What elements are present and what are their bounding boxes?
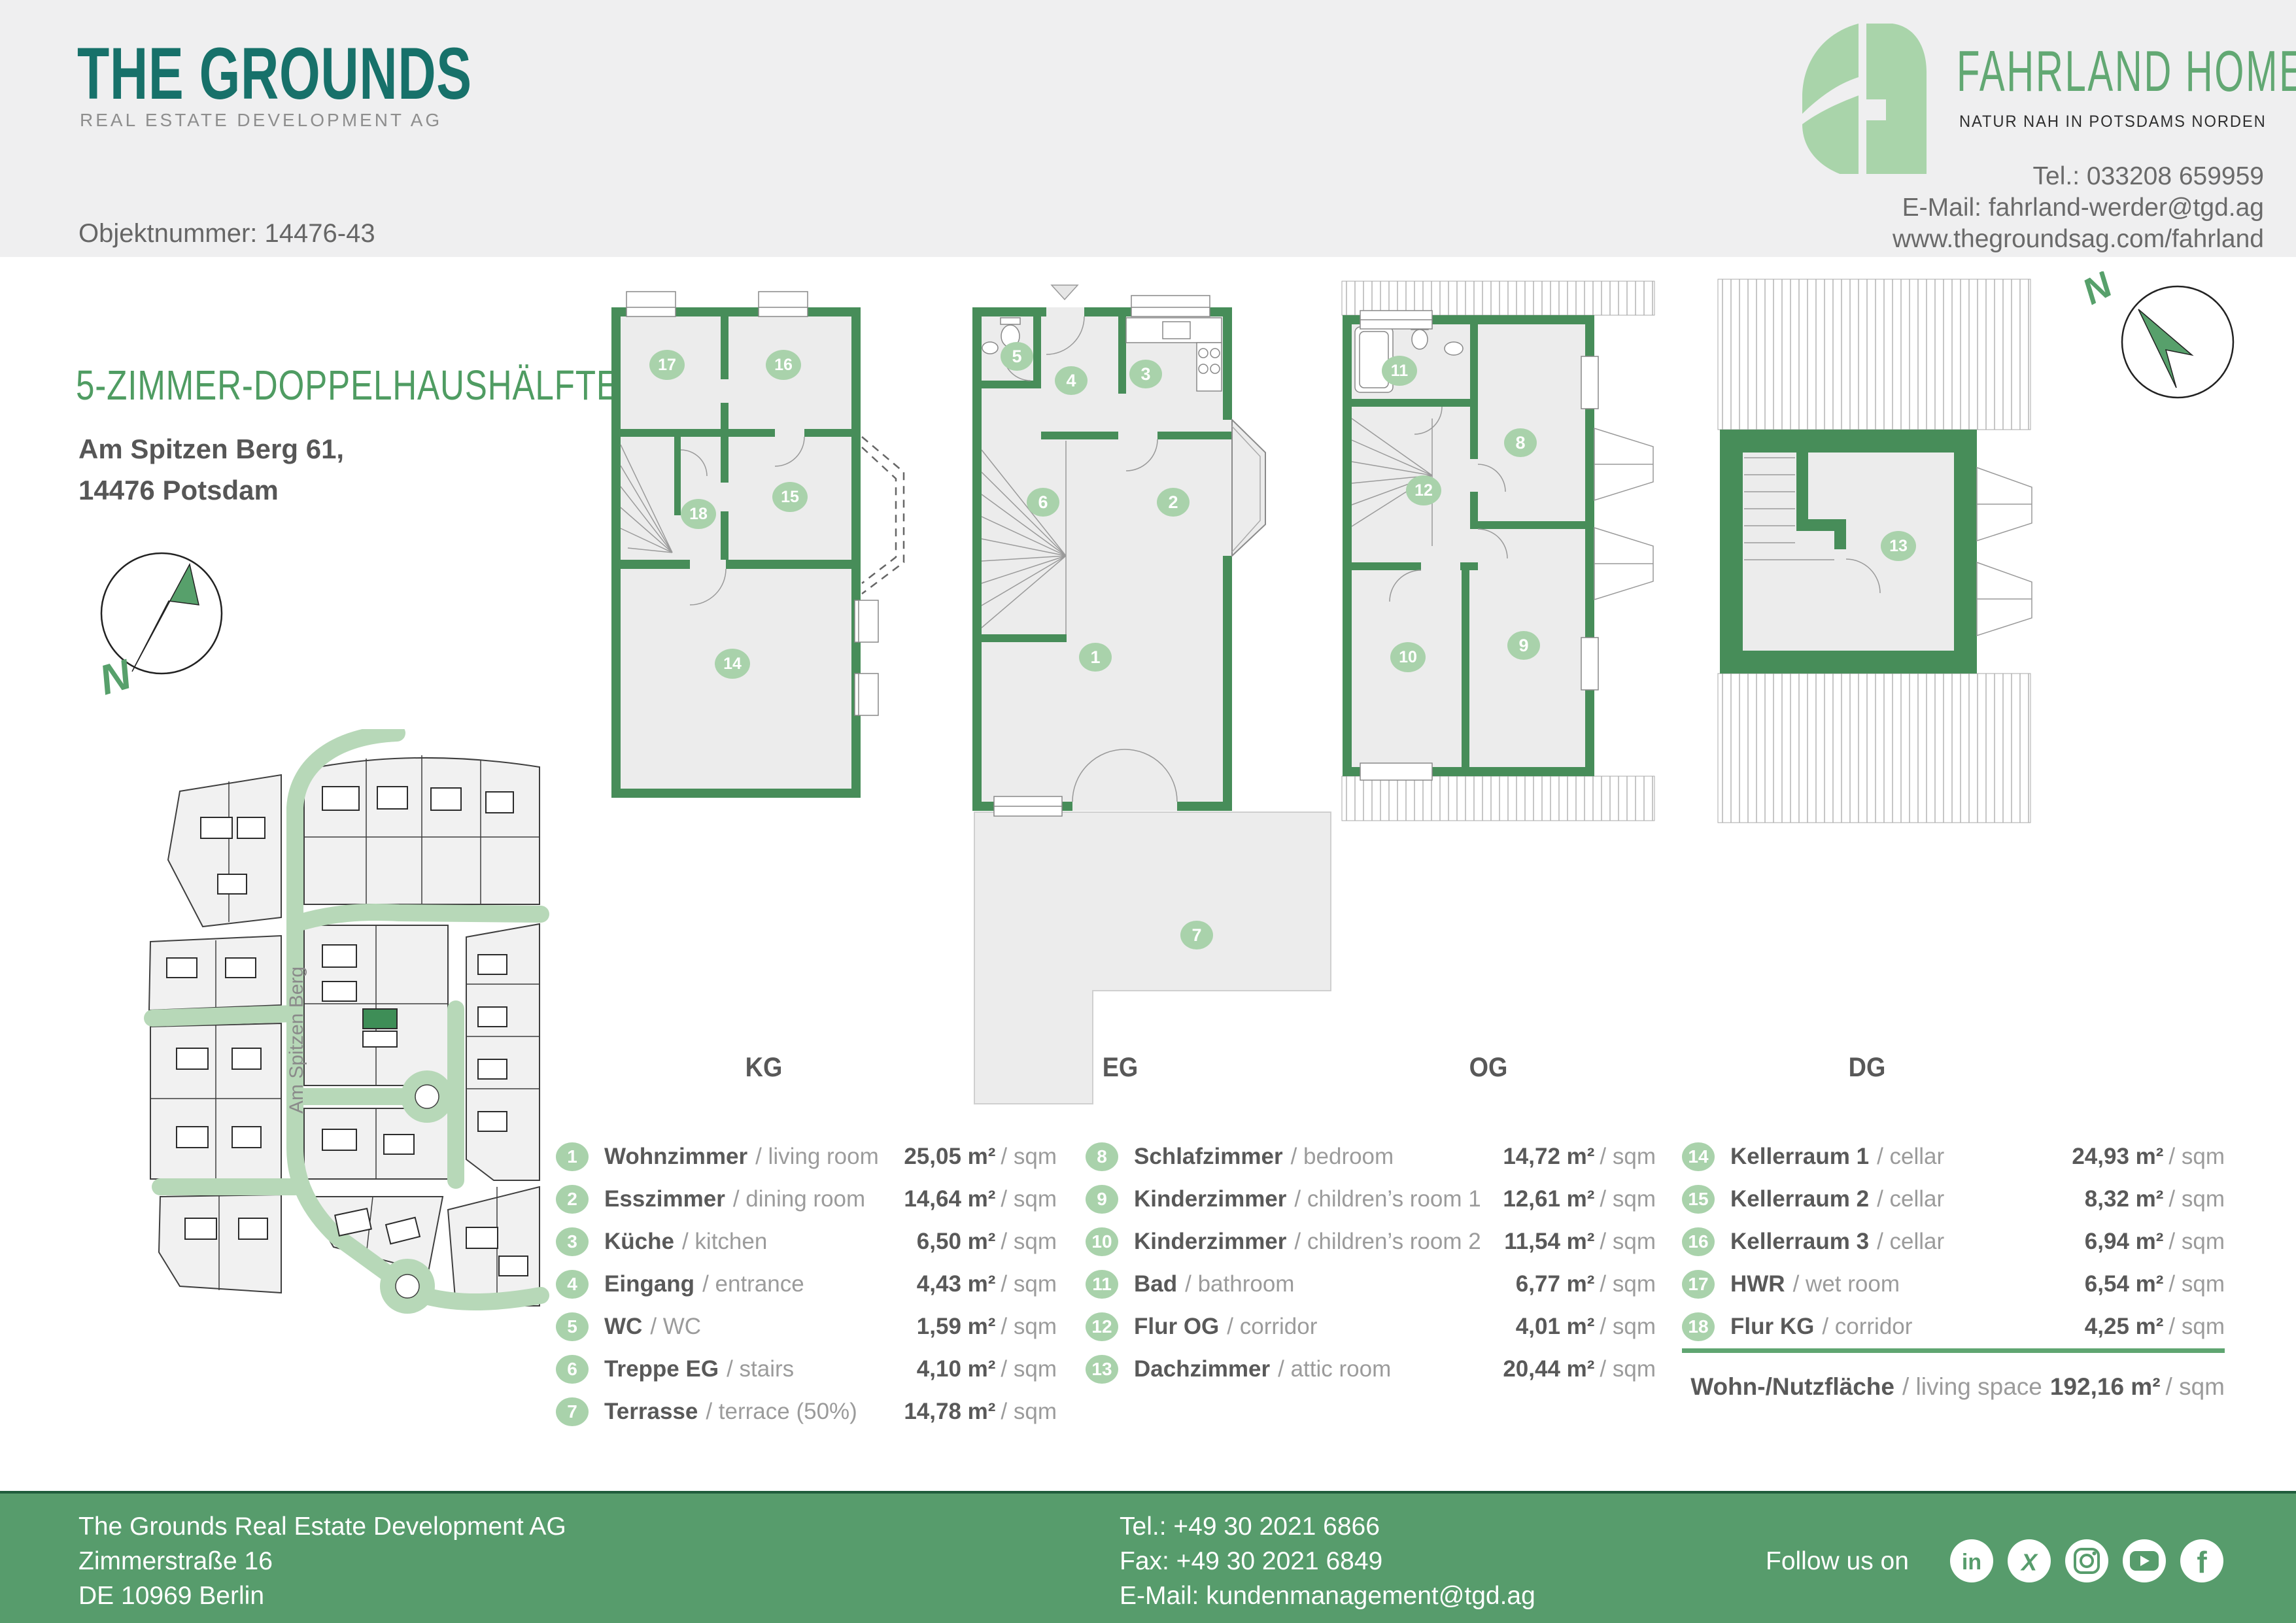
legend-row: 13Dachzimmer/ attic room20,44 m²/ sqm — [1086, 1348, 1656, 1390]
room-name-en: / living room — [755, 1144, 879, 1170]
room-name-en: / terrace (50%) — [706, 1399, 857, 1425]
total-label-en: / living space — [1902, 1373, 2042, 1401]
street-name-label: Am Spitzen Berg — [286, 966, 307, 1114]
room-number-badge: 16 — [1682, 1227, 1715, 1256]
room-area-unit: / sqm — [1001, 1186, 1057, 1212]
total-area-row: Wohn-/Nutzfläche / living space 192,16 m… — [1682, 1373, 2225, 1401]
og-dormers — [1594, 428, 1653, 600]
legend-row: 9Kinderzimmer/ children’s room 112,61 m²… — [1086, 1178, 1656, 1220]
fahrland-homes-logo-icon — [1793, 17, 1944, 174]
floorplan-kg: 17 16 15 18 14 — [608, 281, 916, 817]
floor-label-kg: KG — [745, 1051, 783, 1083]
legend-row: 7Terrasse/ terrace (50%)14,78 m²/ sqm — [556, 1390, 1057, 1433]
room-name-de: HWR — [1730, 1271, 1785, 1297]
room-name-en: / children’s room 1 — [1294, 1186, 1481, 1212]
room-name-de: Dachzimmer — [1134, 1356, 1270, 1382]
room-name-en: / stairs — [727, 1356, 794, 1382]
room-area: 12,61 m² — [1503, 1186, 1594, 1212]
footer-company-city: DE 10969 Berlin — [78, 1579, 566, 1613]
room-name-de: Treppe EG — [604, 1356, 719, 1382]
room-name-de: Esszimmer — [604, 1186, 725, 1212]
room-number-badge: 17 — [1682, 1270, 1715, 1299]
svg-text:13: 13 — [1889, 537, 1908, 555]
legend-row: 18Flur KG/ corridor4,25 m²/ sqm — [1682, 1305, 2225, 1348]
footer: The Grounds Real Estate Development AG Z… — [0, 1491, 2296, 1623]
floor-label-eg: EG — [1103, 1051, 1139, 1083]
footer-contact-block: Tel.: +49 30 2021 6866 Fax: +49 30 2021 … — [1120, 1509, 1535, 1613]
room-number-badge: 10 — [1086, 1227, 1118, 1256]
address-line-2: 14476 Potsdam — [78, 470, 344, 511]
subject-house-marker — [363, 1009, 397, 1029]
room-area-unit: / sqm — [1001, 1399, 1057, 1425]
map-culdesacs — [380, 1070, 453, 1314]
xing-icon[interactable]: X — [2008, 1539, 2051, 1582]
room-area-unit: / sqm — [1001, 1356, 1057, 1382]
floorplan-dg: 13 — [1710, 271, 2040, 830]
room-area-unit: / sqm — [1600, 1229, 1656, 1255]
legend-column-2: 8Schlafzimmer/ bedroom14,72 m²/ sqm9Kind… — [1086, 1135, 1656, 1390]
total-area-unit: / sqm — [2166, 1373, 2225, 1401]
header-contact-block: Tel.: 033208 659959 E-Mail: fahrland-wer… — [1893, 161, 2264, 255]
total-area-value: 192,16 m² — [2050, 1373, 2161, 1401]
contact-web: www.thegroundsag.com/fahrland — [1893, 224, 2264, 255]
room-name-en: / children’s room 2 — [1294, 1229, 1481, 1255]
room-name-en: / bathroom — [1185, 1271, 1294, 1297]
room-area: 1,59 m² — [917, 1314, 996, 1340]
room-number-badge: 1 — [556, 1142, 589, 1171]
room-name-de: Kellerraum 3 — [1730, 1229, 1869, 1255]
room-number-badge: 9 — [1086, 1185, 1118, 1214]
room-name-de: WC — [604, 1314, 642, 1340]
room-area: 6,50 m² — [917, 1229, 996, 1255]
legend-row: 10Kinderzimmer/ children’s room 211,54 m… — [1086, 1220, 1656, 1263]
room-area-unit: / sqm — [1001, 1144, 1057, 1170]
room-area: 6,94 m² — [2085, 1229, 2164, 1255]
eg-terrace — [974, 812, 1331, 1104]
room-name-en: / cellar — [1877, 1229, 1944, 1255]
room-number-badge: 18 — [1682, 1312, 1715, 1341]
room-area-unit: / sqm — [1600, 1314, 1656, 1340]
room-area-unit: / sqm — [2168, 1229, 2225, 1255]
room-area: 6,77 m² — [1516, 1271, 1595, 1297]
room-name-en: / cellar — [1877, 1144, 1944, 1170]
room-area: 4,43 m² — [917, 1271, 996, 1297]
footer-company-street: Zimmerstraße 16 — [78, 1544, 566, 1579]
room-name-de: Kellerraum 1 — [1730, 1144, 1869, 1170]
fahrland-homes-tagline: NATUR NAH IN POTSDAMS NORDEN — [1959, 112, 2267, 131]
object-number: Objektnummer: 14476-43 — [78, 219, 375, 248]
room-name-en: / dining room — [733, 1186, 865, 1212]
room-name-de: Flur KG — [1730, 1314, 1814, 1340]
room-name-en: / cellar — [1877, 1186, 1944, 1212]
svg-text:5: 5 — [1012, 347, 1021, 366]
legend-row: 12Flur OG/ corridor4,01 m²/ sqm — [1086, 1305, 1656, 1348]
svg-text:in: in — [1962, 1550, 1981, 1575]
svg-text:16: 16 — [774, 356, 793, 374]
room-name-de: Flur OG — [1134, 1314, 1219, 1340]
room-area: 24,93 m² — [2072, 1144, 2163, 1170]
compass-icon: N — [92, 546, 232, 700]
floorplan-eg: 5 4 3 6 2 1 7 — [968, 281, 1341, 1112]
room-number-badge: 6 — [556, 1355, 589, 1384]
room-name-en: / entrance — [702, 1271, 804, 1297]
svg-text:3: 3 — [1140, 364, 1150, 384]
follow-us-label: Follow us on — [1766, 1547, 1909, 1576]
room-number-badge: 2 — [556, 1185, 589, 1214]
room-area: 14,64 m² — [904, 1186, 995, 1212]
legend-row: 14Kellerraum 1/ cellar24,93 m²/ sqm — [1682, 1135, 2225, 1178]
dg-floor — [1743, 453, 1954, 651]
room-area-unit: / sqm — [1001, 1271, 1057, 1297]
contact-email: E-Mail: fahrland-werder@tgd.ag — [1893, 192, 2264, 224]
svg-text:8: 8 — [1515, 433, 1525, 453]
room-area-unit: / sqm — [1600, 1144, 1656, 1170]
svg-text:15: 15 — [781, 488, 799, 506]
address-line-1: Am Spitzen Berg 61, — [78, 428, 344, 470]
legend-row: 16Kellerraum 3/ cellar6,94 m²/ sqm — [1682, 1220, 2225, 1263]
total-label-de: Wohn-/Nutzfläche — [1690, 1373, 1894, 1401]
room-area: 6,54 m² — [2085, 1271, 2164, 1297]
svg-text:18: 18 — [689, 505, 708, 523]
room-number-badge: 12 — [1086, 1312, 1118, 1341]
room-area-unit: / sqm — [2168, 1314, 2225, 1340]
eg-entry-marker — [1052, 285, 1078, 299]
legend-row: 5WC/ WC1,59 m²/ sqm — [556, 1305, 1057, 1348]
room-number-badge: 8 — [1086, 1142, 1118, 1171]
legend-column-3: 14Kellerraum 1/ cellar24,93 m²/ sqm15Kel… — [1682, 1135, 2225, 1348]
room-area: 14,72 m² — [1503, 1144, 1594, 1170]
room-name-en: / corridor — [1822, 1314, 1912, 1340]
svg-text:17: 17 — [658, 356, 676, 374]
room-area-unit: / sqm — [2168, 1144, 2225, 1170]
og-roof-hatch-top — [1342, 281, 1654, 315]
room-area: 25,05 m² — [904, 1144, 995, 1170]
floor-label-og: OG — [1469, 1051, 1508, 1083]
legend-row: 1Wohnzimmer/ living room25,05 m²/ sqm — [556, 1135, 1057, 1178]
north-arrow-icon: N — [2080, 271, 2276, 402]
room-number-badge: 5 — [556, 1312, 589, 1341]
contact-tel: Tel.: 033208 659959 — [1893, 161, 2264, 192]
svg-text:11: 11 — [1391, 362, 1409, 380]
room-area: 20,44 m² — [1503, 1356, 1594, 1382]
instagram-icon[interactable] — [2065, 1539, 2108, 1582]
linkedin-icon[interactable]: in — [1950, 1539, 1993, 1582]
property-address: Am Spitzen Berg 61, 14476 Potsdam — [78, 428, 344, 511]
room-area-unit: / sqm — [1001, 1314, 1057, 1340]
dg-room-badges: 13 — [1881, 531, 1916, 561]
svg-text:f: f — [2197, 1545, 2207, 1579]
room-number-badge: 3 — [556, 1227, 589, 1256]
room-name-de: Schlafzimmer — [1134, 1144, 1283, 1170]
legend-total-divider — [1682, 1348, 2225, 1353]
the-grounds-logo-subtitle: REAL ESTATE DEVELOPMENT AG — [80, 110, 442, 131]
footer-fax: Fax: +49 30 2021 6849 — [1120, 1544, 1535, 1579]
legend-row: 11Bad/ bathroom6,77 m²/ sqm — [1086, 1263, 1656, 1305]
svg-text:N: N — [2080, 271, 2119, 313]
fahrland-homes-logo-text: FAHRLAND HOMES — [1957, 38, 2296, 105]
legend-row: 6Treppe EG/ stairs4,10 m²/ sqm — [556, 1348, 1057, 1390]
kg-dashed-outline — [862, 437, 904, 594]
dg-roof-hatch-bottom — [1718, 674, 2030, 823]
room-area-unit: / sqm — [1600, 1271, 1656, 1297]
room-area: 4,25 m² — [2085, 1314, 2164, 1340]
legend-row: 15Kellerraum 2/ cellar8,32 m²/ sqm — [1682, 1178, 2225, 1220]
room-area: 4,10 m² — [917, 1356, 996, 1382]
svg-text:X: X — [2020, 1549, 2038, 1576]
svg-text:7: 7 — [1191, 925, 1201, 945]
room-name-de: Terrasse — [604, 1399, 698, 1425]
svg-text:14: 14 — [723, 655, 742, 673]
svg-text:10: 10 — [1399, 648, 1417, 666]
room-area: 4,01 m² — [1516, 1314, 1595, 1340]
floor-label-dg: DG — [1849, 1051, 1886, 1083]
site-map: Am Spitzen Berg — [141, 729, 553, 1327]
youtube-icon[interactable] — [2123, 1539, 2166, 1582]
footer-tel: Tel.: +49 30 2021 6866 — [1120, 1509, 1535, 1544]
dg-roof-hatch-top — [1718, 279, 2030, 430]
room-number-badge: 14 — [1682, 1142, 1715, 1171]
kg-floor — [611, 307, 861, 798]
legend-row: 2Esszimmer/ dining room14,64 m²/ sqm — [556, 1178, 1057, 1220]
footer-company-block: The Grounds Real Estate Development AG Z… — [78, 1509, 566, 1613]
room-number-badge: 7 — [556, 1397, 589, 1426]
svg-text:9: 9 — [1518, 636, 1528, 655]
room-name-de: Wohnzimmer — [604, 1144, 747, 1170]
room-area-unit: / sqm — [2168, 1271, 2225, 1297]
the-grounds-logo: THE GROUNDS — [77, 31, 472, 116]
legend-row: 17HWR/ wet room6,54 m²/ sqm — [1682, 1263, 2225, 1305]
room-number-badge: 4 — [556, 1270, 589, 1299]
og-roof-hatch-bottom — [1342, 776, 1654, 821]
dg-dormers — [1977, 468, 2032, 636]
eg-bay-window — [1232, 420, 1265, 556]
page-title: 5-ZIMMER-DOPPELHAUSHÄLFTE — [76, 361, 619, 409]
room-name-de: Kinderzimmer — [1134, 1229, 1286, 1255]
footer-company-name: The Grounds Real Estate Development AG — [78, 1509, 566, 1544]
room-number-badge: 15 — [1682, 1185, 1715, 1214]
room-name-en: / corridor — [1227, 1314, 1317, 1340]
legend-column-1: 1Wohnzimmer/ living room25,05 m²/ sqm2Es… — [556, 1135, 1057, 1433]
floorplan-og: 11 8 12 10 9 — [1334, 271, 1661, 830]
svg-text:6: 6 — [1038, 492, 1048, 512]
room-number-badge: 13 — [1086, 1355, 1118, 1384]
room-name-de: Küche — [604, 1229, 674, 1255]
room-area-unit: / sqm — [1600, 1356, 1656, 1382]
footer-email: E-Mail: kundenmanagement@tgd.ag — [1120, 1579, 1535, 1613]
svg-text:4: 4 — [1066, 371, 1076, 390]
room-name-de: Kellerraum 2 — [1730, 1186, 1869, 1212]
room-number-badge: 11 — [1086, 1270, 1118, 1299]
svg-text:1: 1 — [1090, 647, 1100, 667]
facebook-icon[interactable]: f — [2180, 1539, 2223, 1582]
room-name-de: Bad — [1134, 1271, 1177, 1297]
room-name-en: / wet room — [1793, 1271, 1900, 1297]
legend-row: 8Schlafzimmer/ bedroom14,72 m²/ sqm — [1086, 1135, 1656, 1178]
svg-text:12: 12 — [1414, 481, 1433, 500]
room-name-en: / attic room — [1278, 1356, 1391, 1382]
room-name-de: Eingang — [604, 1271, 694, 1297]
room-area: 14,78 m² — [904, 1399, 995, 1425]
room-area: 11,54 m² — [1504, 1229, 1594, 1255]
room-area: 8,32 m² — [2085, 1186, 2164, 1212]
svg-text:2: 2 — [1168, 492, 1178, 512]
room-name-en: / kitchen — [682, 1229, 767, 1255]
social-icons: in X f — [1949, 1535, 2230, 1587]
room-area-unit: / sqm — [1001, 1229, 1057, 1255]
room-area-unit: / sqm — [2168, 1186, 2225, 1212]
legend-row: 3Küche/ kitchen6,50 m²/ sqm — [556, 1220, 1057, 1263]
room-area-unit: / sqm — [1600, 1186, 1656, 1212]
room-name-de: Kinderzimmer — [1134, 1186, 1286, 1212]
legend-row: 4Eingang/ entrance4,43 m²/ sqm — [556, 1263, 1057, 1305]
room-name-en: / bedroom — [1291, 1144, 1394, 1170]
flyer-page: THE GROUNDS REAL ESTATE DEVELOPMENT AG O… — [0, 0, 2296, 1623]
room-name-en: / WC — [650, 1314, 701, 1340]
